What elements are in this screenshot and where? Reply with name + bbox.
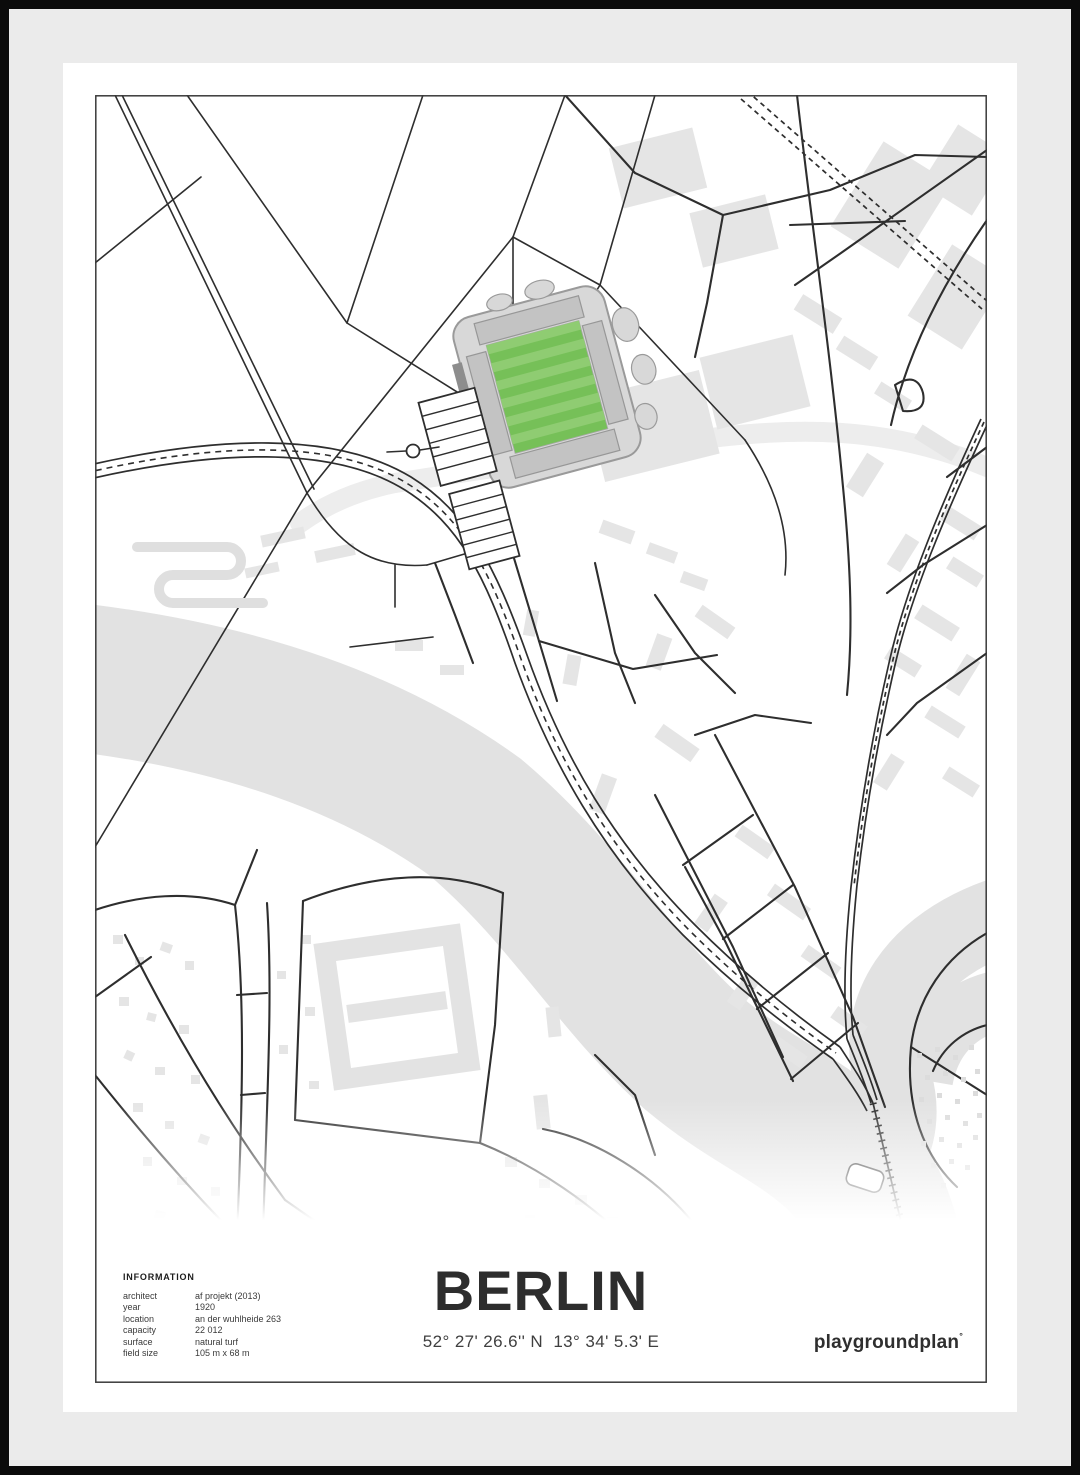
city-map xyxy=(95,95,987,1383)
brand-name: playgroundplan xyxy=(814,1332,959,1353)
map-fade xyxy=(97,1100,986,1260)
city-title: BERLIN xyxy=(95,1263,987,1319)
brand-mark: ° xyxy=(959,1331,963,1341)
switchback-path xyxy=(137,547,263,603)
brand-logo: playgroundplan° xyxy=(814,1331,963,1354)
framed-poster: INFORMATION architect af projekt (2013) … xyxy=(0,0,1080,1475)
